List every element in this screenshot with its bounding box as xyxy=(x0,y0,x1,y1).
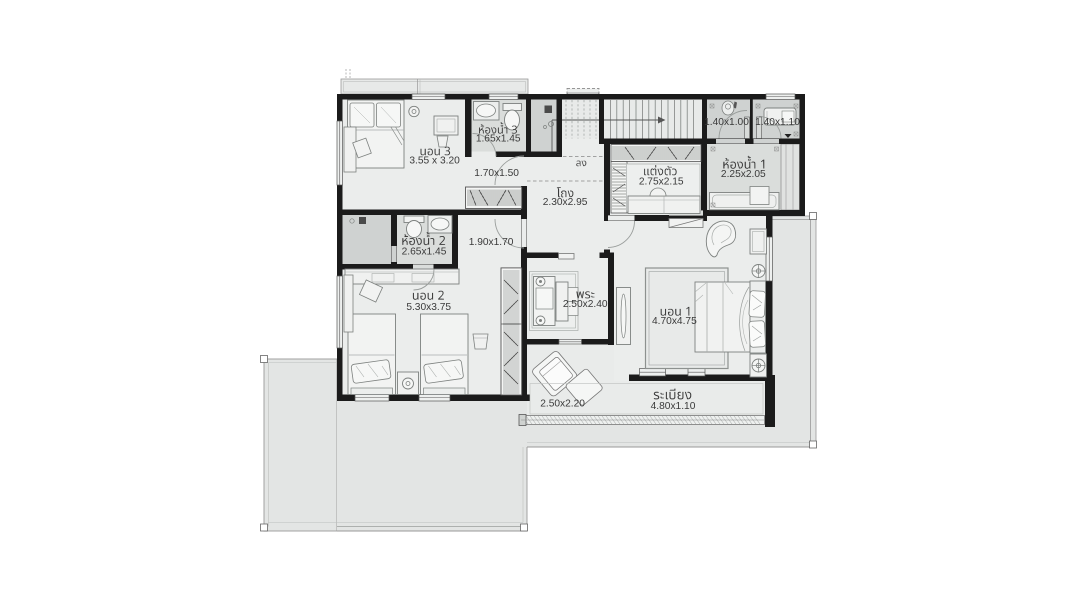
svg-text:1.90x1.70: 1.90x1.70 xyxy=(469,237,514,248)
svg-text:1.40x1.00: 1.40x1.00 xyxy=(704,117,749,128)
svg-text:2.25x2.05: 2.25x2.05 xyxy=(721,169,766,180)
svg-text:1.65x1.45: 1.65x1.45 xyxy=(476,134,521,145)
svg-text:2.50x2.40: 2.50x2.40 xyxy=(563,299,608,310)
svg-text:1.70x1.50: 1.70x1.50 xyxy=(474,168,519,179)
svg-text:1.40x1.10: 1.40x1.10 xyxy=(755,117,800,128)
svg-text:3.55 x 3.20: 3.55 x 3.20 xyxy=(409,155,460,166)
svg-text:5.30x3.75: 5.30x3.75 xyxy=(406,302,451,313)
svg-text:2.30x2.95: 2.30x2.95 xyxy=(543,197,588,208)
svg-text:2.50x2.20: 2.50x2.20 xyxy=(540,398,585,409)
svg-text:4.80x1.10: 4.80x1.10 xyxy=(651,401,696,412)
svg-text:2.75x2.15: 2.75x2.15 xyxy=(639,176,684,187)
svg-text:4.70x4.75: 4.70x4.75 xyxy=(652,316,697,327)
svg-text:2.65x1.45: 2.65x1.45 xyxy=(402,246,447,257)
